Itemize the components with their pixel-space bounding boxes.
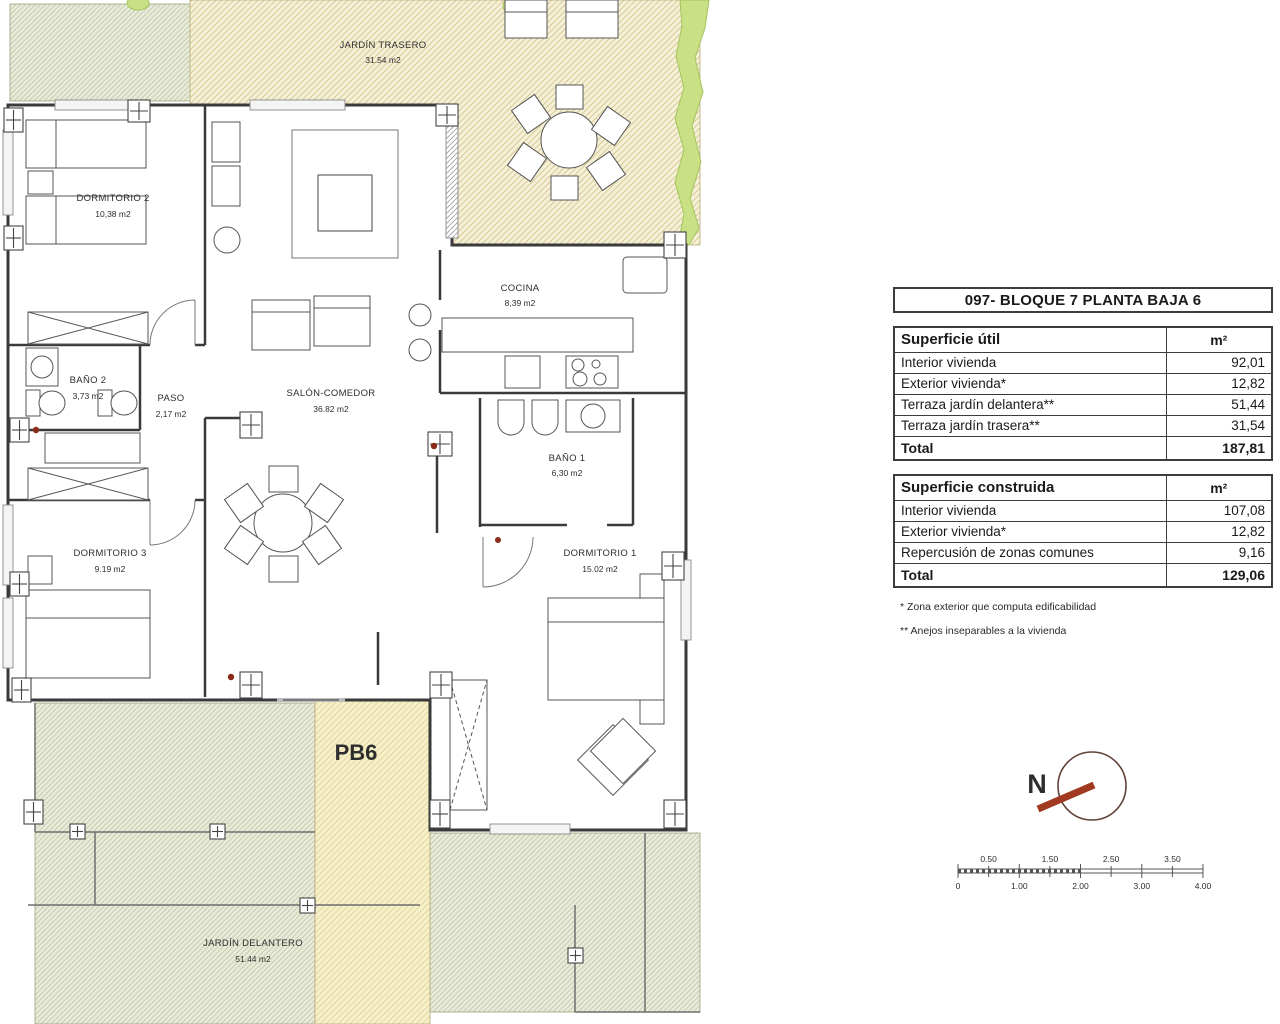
footnote-anejos: ** Anejos inseparables a la vivienda — [893, 625, 1273, 637]
scale-tick-label: 1.00 — [1011, 881, 1028, 891]
room-label-dormitorio-2: DORMITORIO 2 — [76, 193, 149, 204]
nightstand-icon — [28, 171, 53, 194]
pillar-icon — [12, 678, 31, 702]
total-label: Total — [894, 436, 1166, 460]
coffee-table-icon — [318, 175, 372, 231]
pillar-icon — [300, 898, 315, 913]
pillar-icon — [128, 100, 150, 122]
room-area-bano-1: 6,30 m2 — [552, 468, 583, 478]
toilet-icon — [532, 400, 558, 435]
row-value: 12,82 — [1166, 521, 1272, 542]
scale-bar: 0.50 1.50 2.50 3.50 0 1.00 2.00 3.00 4.0… — [945, 850, 1235, 900]
useful-surface-table: Superficie útil m² Interior vivienda 92,… — [893, 326, 1273, 461]
row-value: 9,16 — [1166, 542, 1272, 563]
cabinet-icon — [212, 166, 240, 206]
pillar-icon — [240, 412, 262, 438]
drain-icon — [228, 674, 234, 680]
row-value: 31,54 — [1166, 415, 1272, 436]
back-garden-green-patch — [10, 4, 215, 101]
nightstand-icon — [640, 700, 664, 724]
row-label: Exterior vivienda* — [894, 373, 1166, 394]
table-row: Repercusión de zonas comunes 9,16 — [894, 542, 1272, 563]
table-total-row: Total 187,81 — [894, 436, 1272, 460]
row-label: Exterior vivienda* — [894, 521, 1166, 542]
nightstand-icon — [28, 556, 52, 584]
scale-tick-label: 0 — [956, 881, 961, 891]
plant-icon — [127, 0, 149, 10]
row-label: Interior vivienda — [894, 352, 1166, 373]
pillar-icon — [568, 948, 583, 963]
room-label-salon-comedor: SALÓN-COMEDOR — [287, 388, 376, 399]
pillar-icon — [662, 552, 684, 580]
fridge-icon — [623, 257, 667, 293]
pillar-icon — [4, 226, 23, 250]
toilet-icon — [26, 390, 40, 416]
stool-icon — [409, 339, 431, 361]
side-table-icon — [214, 227, 240, 253]
pillar-icon — [240, 672, 262, 698]
toilet-icon — [498, 400, 524, 435]
total-label: Total — [894, 563, 1166, 587]
window-icon — [3, 598, 13, 668]
floor-plan-svg: JARDÍN TRASERO 31.54 m2 DORMITORIO 2 10,… — [0, 0, 720, 1024]
footnote-exterior: * Zona exterior que computa edificabilid… — [893, 601, 1273, 613]
appliance-icon — [505, 356, 540, 388]
armchair-icon — [314, 296, 370, 346]
scale-tick-label: 0.50 — [980, 854, 997, 864]
row-value: 107,08 — [1166, 500, 1272, 521]
chair-icon — [269, 466, 298, 492]
scale-tick-label: 3.50 — [1164, 854, 1181, 864]
room-label-dormitorio-1: DORMITORIO 1 — [563, 548, 636, 559]
north-arrow: N — [1005, 735, 1185, 835]
room-label-paso: PASO — [158, 393, 185, 404]
counter-icon — [442, 318, 633, 352]
table-row: Interior vivienda 107,08 — [894, 500, 1272, 521]
armchair-icon — [252, 300, 310, 350]
table-row: Interior vivienda 92,01 — [894, 352, 1272, 373]
terrace-table-icon — [541, 112, 597, 168]
nightstand-icon — [640, 574, 664, 598]
bed-icon — [26, 120, 146, 168]
bed-icon — [548, 598, 664, 700]
room-area-salon-comedor: 36.82 m2 — [313, 404, 349, 414]
useful-surface-header: Superficie útil — [894, 327, 1166, 352]
shower-icon — [45, 433, 140, 463]
room-area-jardin-delantero: 51.44 m2 — [235, 954, 271, 964]
row-value: 51,44 — [1166, 394, 1272, 415]
bed-icon — [26, 590, 150, 678]
room-label-jardin-trasero: JARDÍN TRASERO — [340, 40, 427, 51]
pillar-icon — [436, 104, 458, 126]
room-area-dormitorio-3: 9.19 m2 — [95, 564, 126, 574]
pillar-icon — [664, 800, 686, 828]
scale-tick-label: 2.50 — [1103, 854, 1120, 864]
pillar-icon — [210, 824, 225, 839]
row-label: Interior vivienda — [894, 500, 1166, 521]
window-icon — [55, 100, 130, 110]
window-icon — [250, 100, 345, 110]
unit-label-pb6: PB6 — [335, 740, 378, 765]
pillar-icon — [4, 108, 23, 132]
row-label: Terraza jardín trasera** — [894, 415, 1166, 436]
drain-icon — [495, 537, 501, 543]
room-area-dormitorio-1: 15.02 m2 — [582, 564, 618, 574]
drain-icon — [431, 443, 437, 449]
lounge-chair-icon — [566, 0, 618, 38]
window-icon — [3, 130, 13, 215]
room-label-dormitorio-3: DORMITORIO 3 — [73, 548, 146, 559]
scale-tick-label: 1.50 — [1042, 854, 1059, 864]
room-label-bano-1: BAÑO 1 — [549, 453, 586, 464]
scale-bar-rails — [958, 864, 1203, 878]
total-value: 129,06 — [1166, 563, 1272, 587]
lounge-chair-icon — [505, 0, 547, 38]
stool-icon — [409, 304, 431, 326]
chair-icon — [269, 556, 298, 582]
front-garden-left — [35, 703, 315, 1024]
floorplan-sheet: JARDÍN TRASERO 31.54 m2 DORMITORIO 2 10,… — [0, 0, 1280, 1024]
plan-title: 097- BLOQUE 7 PLANTA BAJA 6 — [893, 287, 1273, 313]
info-panel: 097- BLOQUE 7 PLANTA BAJA 6 Superficie ú… — [893, 287, 1273, 637]
room-area-jardin-trasero: 31.54 m2 — [365, 55, 401, 65]
chair-icon — [551, 176, 578, 200]
room-label-jardin-delantero: JARDÍN DELANTERO — [203, 938, 303, 949]
pillar-icon — [430, 800, 450, 828]
chair-icon — [556, 85, 583, 109]
pillar-icon — [70, 824, 85, 839]
row-value: 12,82 — [1166, 373, 1272, 394]
scale-tick-label: 4.00 — [1195, 881, 1212, 891]
window-icon — [490, 824, 570, 834]
cabinet-icon — [212, 122, 240, 162]
room-area-cocina: 8,39 m2 — [505, 298, 536, 308]
front-garden-right — [430, 833, 700, 1012]
pillar-icon — [430, 672, 452, 698]
room-label-bano-2: BAÑO 2 — [70, 375, 107, 386]
pillar-icon — [664, 232, 686, 258]
pillar-icon — [24, 800, 43, 824]
pillar-icon — [10, 572, 29, 596]
row-label: Terraza jardín delantera** — [894, 394, 1166, 415]
built-surface-header: Superficie construida — [894, 475, 1166, 500]
row-value: 92,01 — [1166, 352, 1272, 373]
drain-icon — [33, 427, 39, 433]
unit-header: m² — [1166, 475, 1272, 500]
table-row: Terraza jardín delantera** 51,44 — [894, 394, 1272, 415]
room-label-cocina: COCINA — [501, 283, 540, 294]
row-label: Repercusión de zonas comunes — [894, 542, 1166, 563]
room-area-bano-2: 3,73 m2 — [73, 391, 104, 401]
scale-tick-label: 2.00 — [1072, 881, 1089, 891]
table-row: Terraza jardín trasera** 31,54 — [894, 415, 1272, 436]
north-label: N — [1027, 769, 1047, 799]
glass-door-icon — [446, 118, 458, 238]
table-row: Exterior vivienda* 12,82 — [894, 521, 1272, 542]
table-total-row: Total 129,06 — [894, 563, 1272, 587]
table-row: Exterior vivienda* 12,82 — [894, 373, 1272, 394]
room-area-dormitorio-2: 10,38 m2 — [95, 209, 131, 219]
built-surface-table: Superficie construida m² Interior vivien… — [893, 474, 1273, 588]
scale-tick-label: 3.00 — [1134, 881, 1151, 891]
total-value: 187,81 — [1166, 436, 1272, 460]
room-area-paso: 2,17 m2 — [156, 409, 187, 419]
unit-header: m² — [1166, 327, 1272, 352]
pillar-icon — [10, 418, 29, 442]
